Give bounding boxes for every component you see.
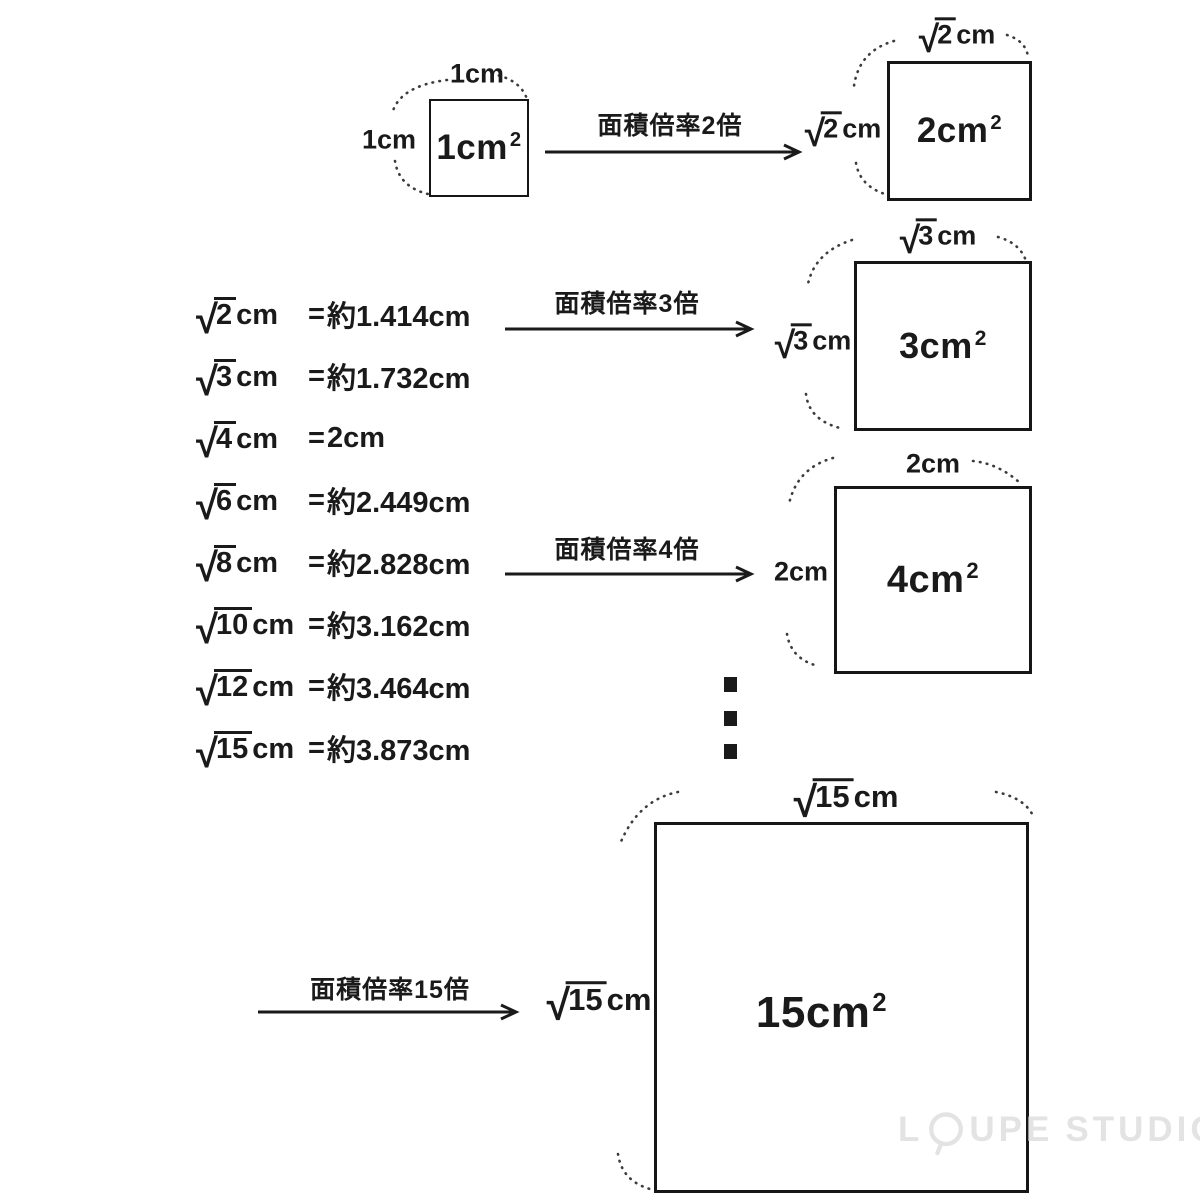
table-row-sqrt6: √6cm =約2.449cm bbox=[196, 469, 470, 531]
watermark-text: UPE bbox=[969, 1110, 1053, 1150]
arrow-area-x2 bbox=[545, 145, 799, 159]
radical-sign: √ bbox=[547, 990, 570, 1021]
table-row-sqrt15: √15cm =約3.873cm bbox=[196, 717, 470, 779]
radical-sign: √ bbox=[900, 227, 920, 254]
arrow-label-x15: 面積倍率15倍 bbox=[310, 970, 470, 1006]
sqrt-value-table: √2cm =約1.414cm √3cm =約1.732cm √4cm =2cm … bbox=[196, 283, 470, 779]
square-1cm2: 1cm2 bbox=[429, 99, 529, 197]
table-row-sqrt8: √8cm =約2.828cm bbox=[196, 531, 470, 593]
area-label-3cm2: 3cm2 bbox=[899, 325, 987, 367]
arrow-label-x4: 面積倍率4倍 bbox=[555, 530, 700, 566]
side-label-left-2cm2: √2cm bbox=[805, 111, 882, 142]
radical-sign: √ bbox=[196, 554, 218, 583]
arrow-area-x4 bbox=[505, 567, 751, 581]
side-label-left-3cm2: √3cm bbox=[775, 323, 852, 354]
table-row-sqrt3: √3cm =約1.732cm bbox=[196, 345, 470, 407]
watermark-loupe-studio: L UPE STUDIO bbox=[898, 1106, 1200, 1154]
square-4cm2: 4cm2 bbox=[834, 486, 1032, 674]
table-row-sqrt4: √4cm =2cm bbox=[196, 407, 470, 469]
table-row-sqrt2: √2cm =約1.414cm bbox=[196, 283, 470, 345]
radical-sign: √ bbox=[775, 332, 795, 359]
side-label-top-15cm2: √15cm bbox=[794, 778, 899, 814]
ellipsis-dot bbox=[724, 744, 737, 759]
watermark-text: L bbox=[898, 1110, 923, 1150]
side-label-left-15cm2: √15cm bbox=[547, 981, 652, 1017]
arrow-label-x3: 面積倍率3倍 bbox=[555, 284, 700, 320]
side-label-top-3cm2: √3cm bbox=[900, 218, 977, 249]
radical-sign: √ bbox=[794, 787, 817, 818]
square-3cm2: 3cm2 bbox=[854, 261, 1032, 431]
radical-sign: √ bbox=[196, 678, 218, 707]
side-label-top-4cm2: 2cm bbox=[906, 449, 960, 480]
loupe-icon bbox=[925, 1110, 967, 1158]
arrow-area-x15 bbox=[258, 1005, 516, 1019]
radical-sign: √ bbox=[805, 120, 825, 147]
table-row-sqrt10: √10cm =約3.162cm bbox=[196, 593, 470, 655]
arrow-area-x3 bbox=[505, 322, 751, 336]
radical-sign: √ bbox=[196, 306, 218, 335]
side-label-top-1cm2: 1cm bbox=[450, 59, 504, 90]
area-label-2cm2: 2cm2 bbox=[917, 111, 1002, 151]
side-label-left-1cm2: 1cm bbox=[362, 125, 416, 156]
watermark-text: STUDIO bbox=[1065, 1110, 1200, 1150]
radical-sign: √ bbox=[196, 740, 218, 769]
area-label-1cm2: 1cm2 bbox=[436, 128, 521, 168]
area-label-15cm2: 15cm2 bbox=[756, 988, 887, 1038]
arrow-label-x2: 面積倍率2倍 bbox=[598, 106, 743, 142]
table-row-sqrt12: √12cm =約3.464cm bbox=[196, 655, 470, 717]
radical-sign: √ bbox=[196, 492, 218, 521]
side-label-top-2cm2: √2cm bbox=[919, 17, 996, 48]
radical-sign: √ bbox=[196, 616, 218, 645]
radical-sign: √ bbox=[196, 368, 218, 397]
area-label-4cm2: 4cm2 bbox=[887, 559, 979, 602]
square-2cm2: 2cm2 bbox=[887, 61, 1032, 201]
radical-sign: √ bbox=[196, 430, 218, 459]
side-label-left-4cm2: 2cm bbox=[774, 557, 828, 588]
ellipsis-dot bbox=[724, 677, 737, 692]
diagram-canvas: 1cm2 2cm2 3cm2 4cm2 15cm2 1cm 1cm √2cm √… bbox=[0, 0, 1200, 1200]
radical-sign: √ bbox=[919, 26, 939, 53]
ellipsis-dot bbox=[724, 711, 737, 726]
